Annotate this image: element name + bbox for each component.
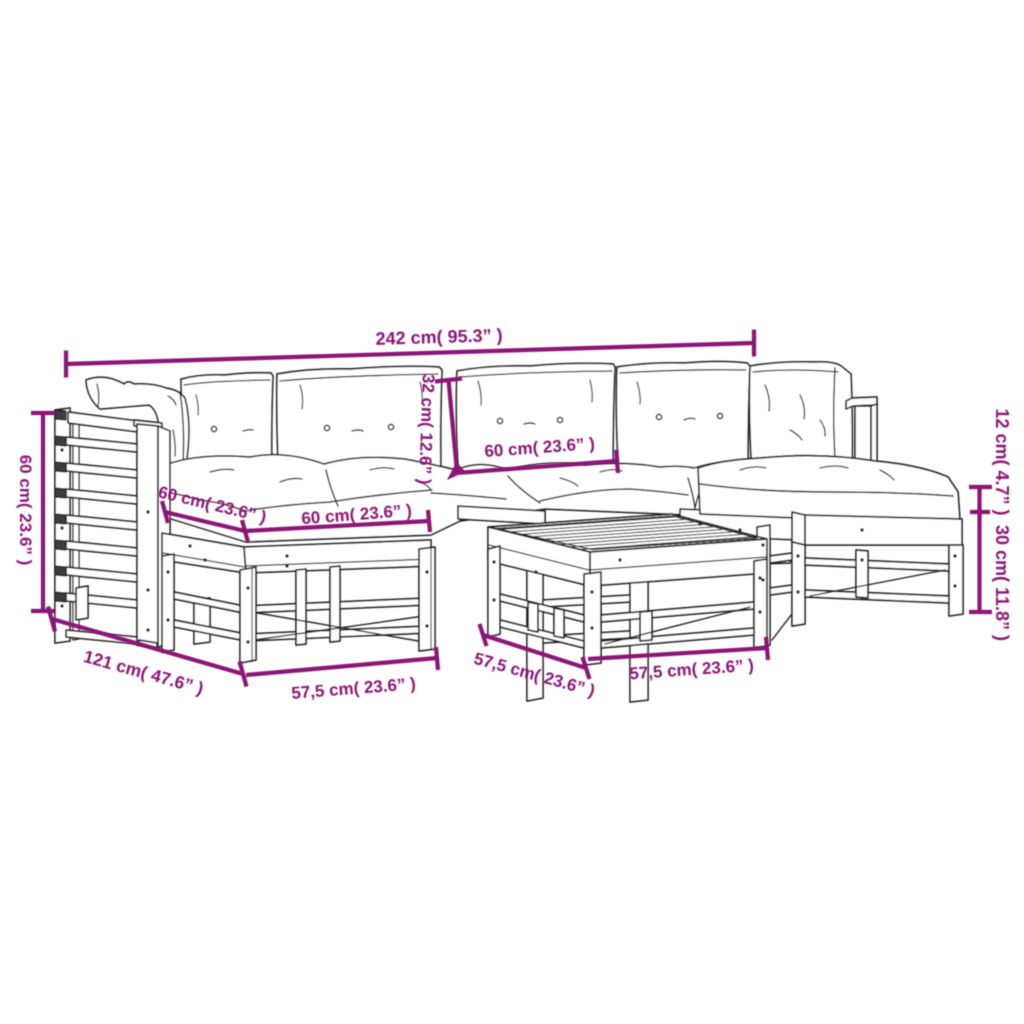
svg-text:242 cm( 95.3” ): 242 cm( 95.3” ): [375, 325, 503, 349]
svg-text:12 cm( 4.7” ): 12 cm( 4.7” ): [992, 408, 1012, 515]
svg-text:32 cm( 12.6” ): 32 cm( 12.6” ): [415, 374, 438, 485]
svg-text:30 cm( 11.8” ): 30 cm( 11.8” ): [992, 525, 1012, 641]
svg-text:60 cm( 23.6” ): 60 cm( 23.6” ): [16, 455, 35, 566]
